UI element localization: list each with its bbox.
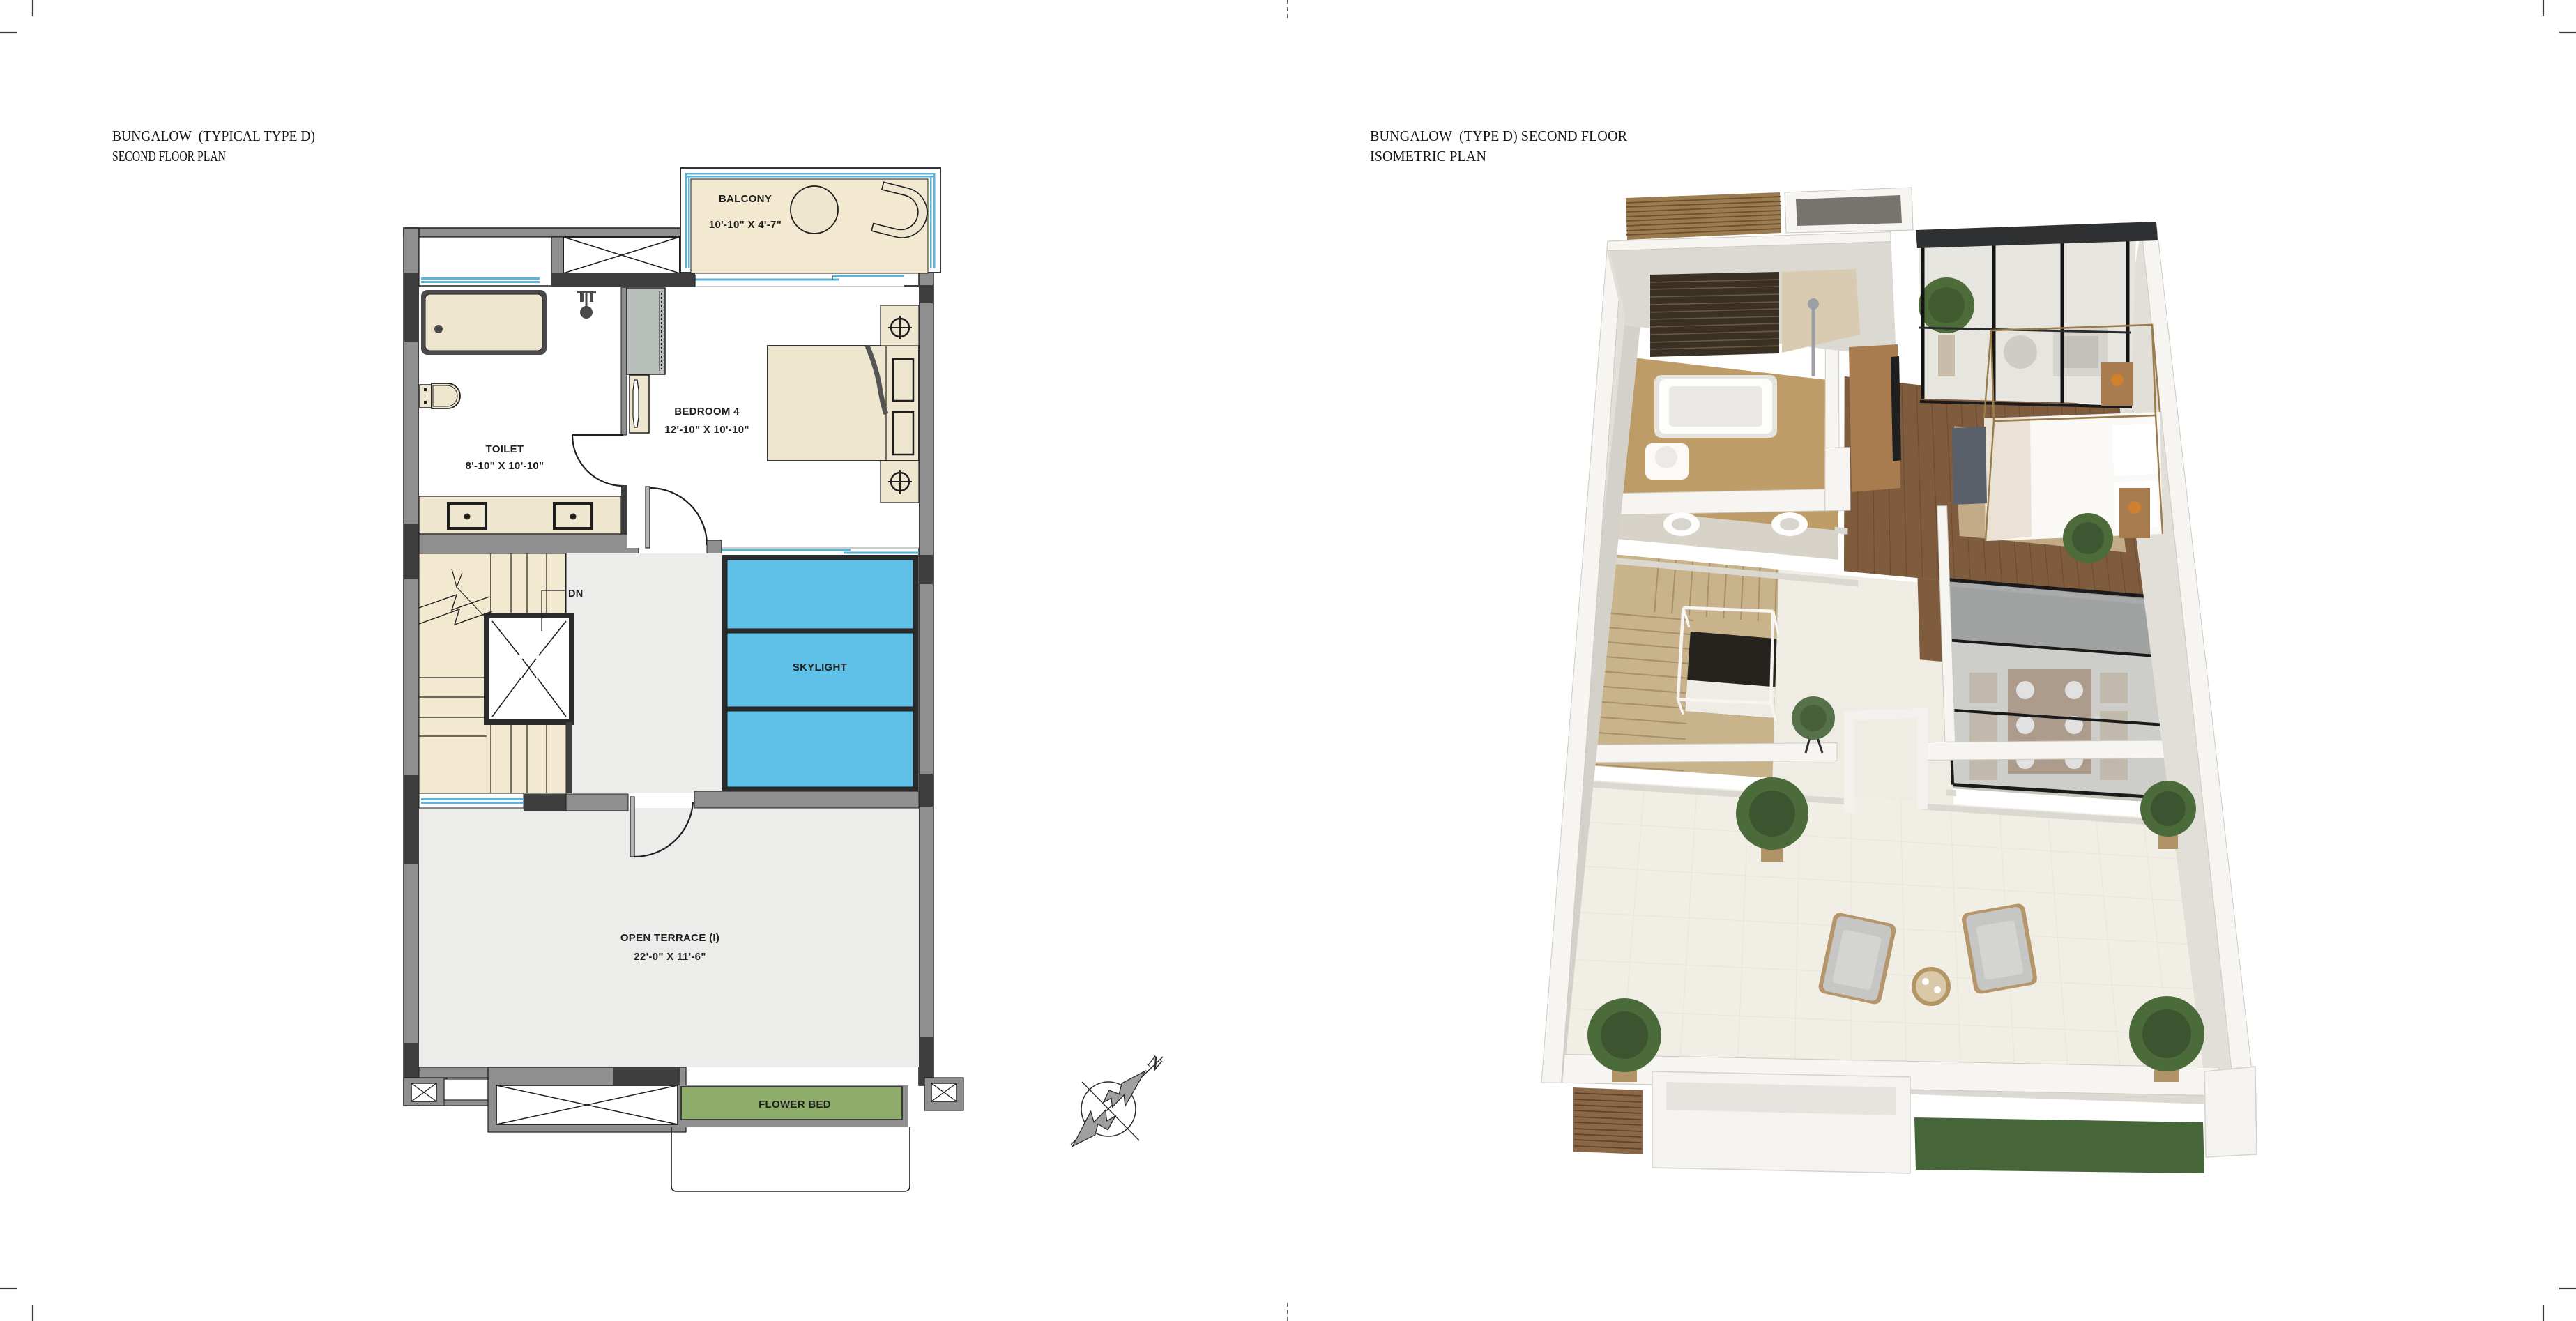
svg-text:BUNGALOW (TYPICAL TYPE D): BUNGALOW (TYPICAL TYPE D) <box>112 128 315 144</box>
svg-text:12'-10" X 10'-10": 12'-10" X 10'-10" <box>664 424 749 436</box>
svg-text:TOILET: TOILET <box>486 443 524 455</box>
svg-text:FLOWER BED: FLOWER BED <box>759 1099 831 1110</box>
svg-text:DN: DN <box>568 588 584 600</box>
svg-text:8'-10" X 10'-10": 8'-10" X 10'-10" <box>466 460 544 472</box>
svg-text:SECOND FLOOR PLAN: SECOND FLOOR PLAN <box>112 148 226 165</box>
svg-text:BEDROOM 4: BEDROOM 4 <box>674 406 740 418</box>
svg-text:BALCONY: BALCONY <box>719 193 772 205</box>
svg-text:OPEN TERRACE (I): OPEN TERRACE (I) <box>620 932 719 944</box>
svg-text:BUNGALOW (TYPE D) SECOND FLOO: BUNGALOW (TYPE D) SECOND FLOOR <box>1370 128 1627 144</box>
svg-text:10'-10" X 4'-7": 10'-10" X 4'-7" <box>709 219 782 231</box>
svg-text:SKYLIGHT: SKYLIGHT <box>793 662 847 673</box>
svg-text:22'-0" X 11'-6": 22'-0" X 11'-6" <box>634 951 706 963</box>
svg-text:ISOMETRIC PLAN: ISOMETRIC PLAN <box>1370 148 1486 165</box>
